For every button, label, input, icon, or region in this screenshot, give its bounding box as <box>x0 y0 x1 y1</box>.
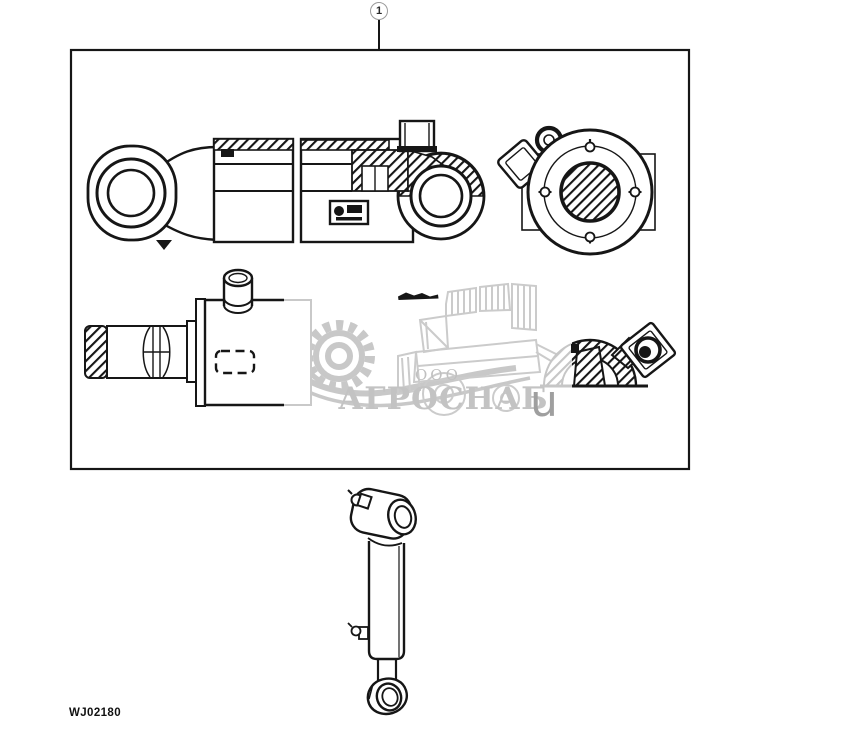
drawing-code: WJ02180 <box>69 707 121 719</box>
cylinder-side-section-view <box>88 121 484 250</box>
cylinder-end-flange-view <box>497 128 655 254</box>
watermark-graphics: ООО АГРОСНАБ u <box>294 284 560 427</box>
seal-strip-part <box>398 293 439 301</box>
rod-gland-section-view <box>85 270 311 406</box>
cylinder-assembly-view <box>348 486 419 714</box>
port-fitting-side <box>348 623 368 639</box>
head-partial-section-view <box>540 322 676 386</box>
flange-bore <box>561 163 619 221</box>
watermark-org-name: АГРОСНАБ <box>338 381 549 417</box>
parts-diagram-canvas: ООО АГРОСНАБ u <box>0 0 841 731</box>
threaded-rod-end <box>85 326 107 378</box>
brand-nameplate <box>330 201 368 224</box>
parts-diagram-page: 1 <box>0 0 841 731</box>
